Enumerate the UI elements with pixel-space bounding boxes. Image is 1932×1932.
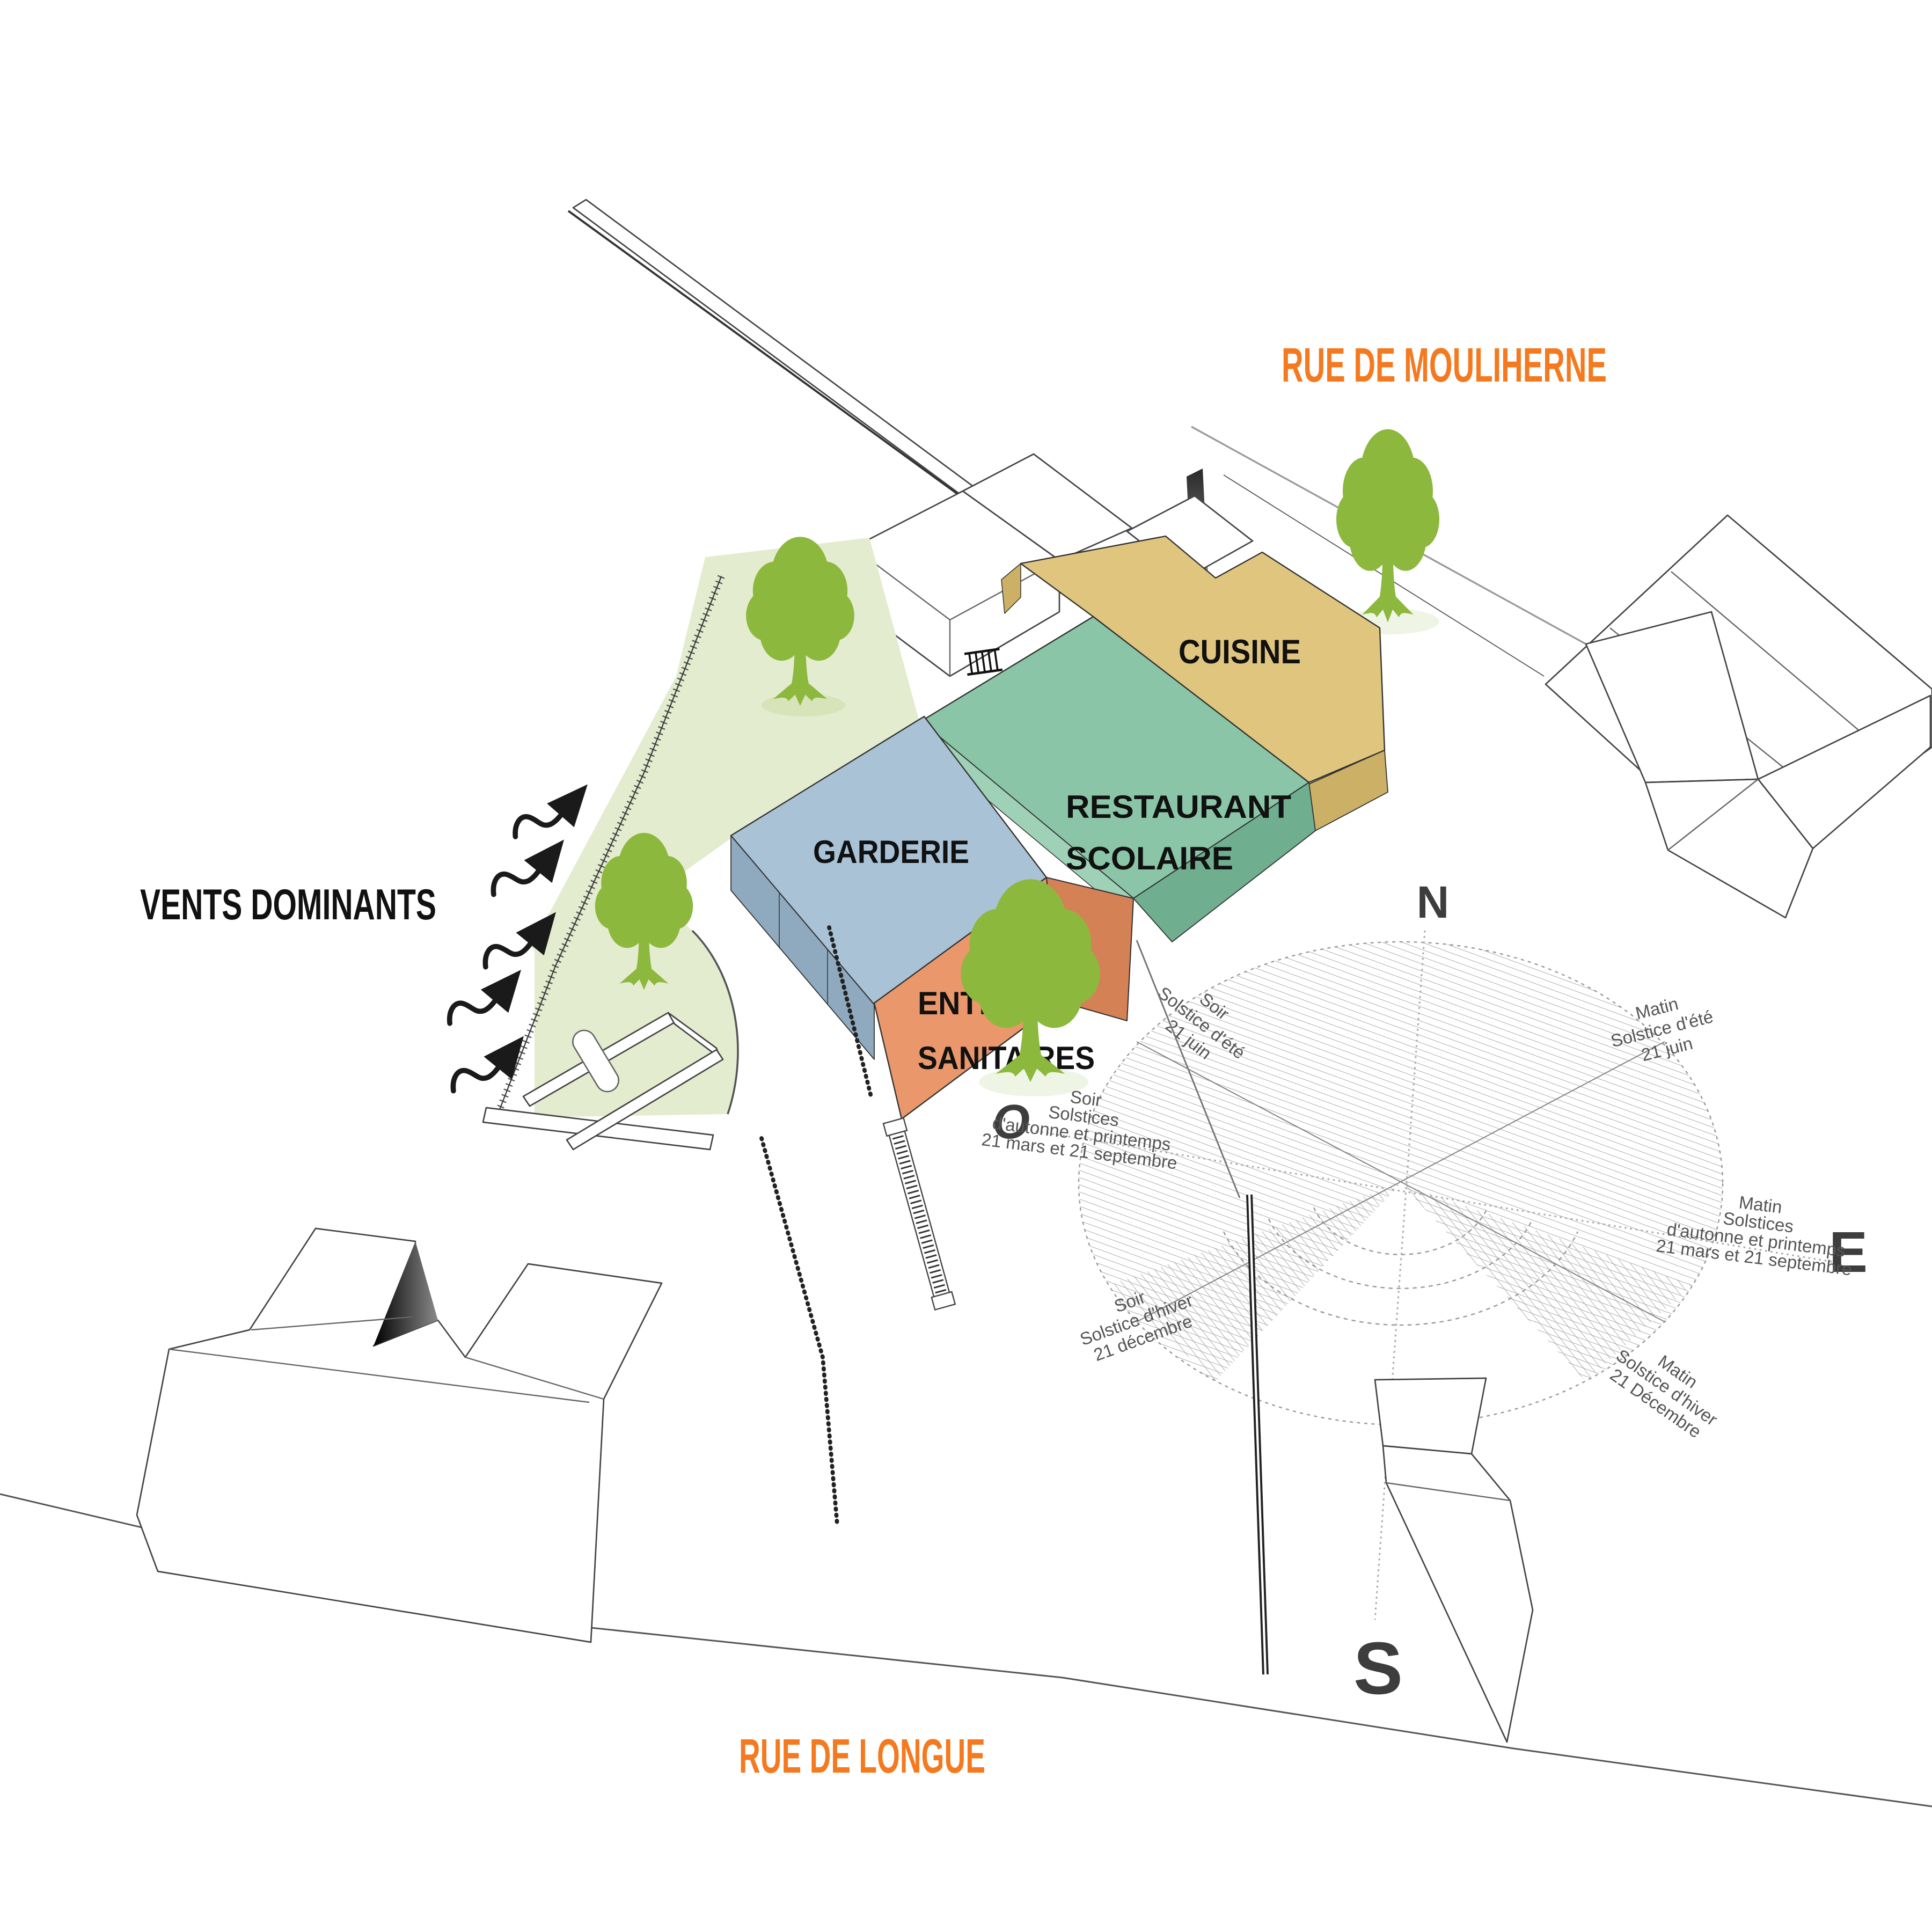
wind-label: VENTS DOMINANTS (140, 881, 436, 929)
wind-arrow-icon (446, 994, 503, 1023)
compass-south-label: S (1353, 1627, 1403, 1710)
street-label-moulherne: RUE DE MOULIHERNE (1282, 339, 1607, 392)
label-garderie: GARDERIE (813, 834, 969, 870)
site-diagram: RUE DE MOULIHERNE (0, 0, 1932, 1932)
existing-building-southwest (137, 1228, 662, 1642)
street-label-longue: RUE DE LONGUE (739, 1730, 985, 1783)
wind-arrow-icon (481, 936, 539, 967)
tree-icon (1336, 429, 1439, 634)
gate-fence (883, 1118, 955, 1309)
site-diagram-canvas: RUE DE MOULIHERNE (0, 0, 1932, 1932)
wind-arrow-icon (449, 1060, 507, 1091)
existing-building-east (1546, 515, 1932, 918)
compass-north-label: N (1417, 877, 1450, 927)
label-cuisine: CUISINE (1179, 633, 1301, 671)
wind-arrow-icon (489, 864, 547, 894)
label-restaurant-line2: SCOLAIRE (1066, 840, 1233, 876)
label-restaurant-line1: RESTAURANT (1066, 789, 1291, 825)
wind-arrow-icon (512, 808, 569, 837)
